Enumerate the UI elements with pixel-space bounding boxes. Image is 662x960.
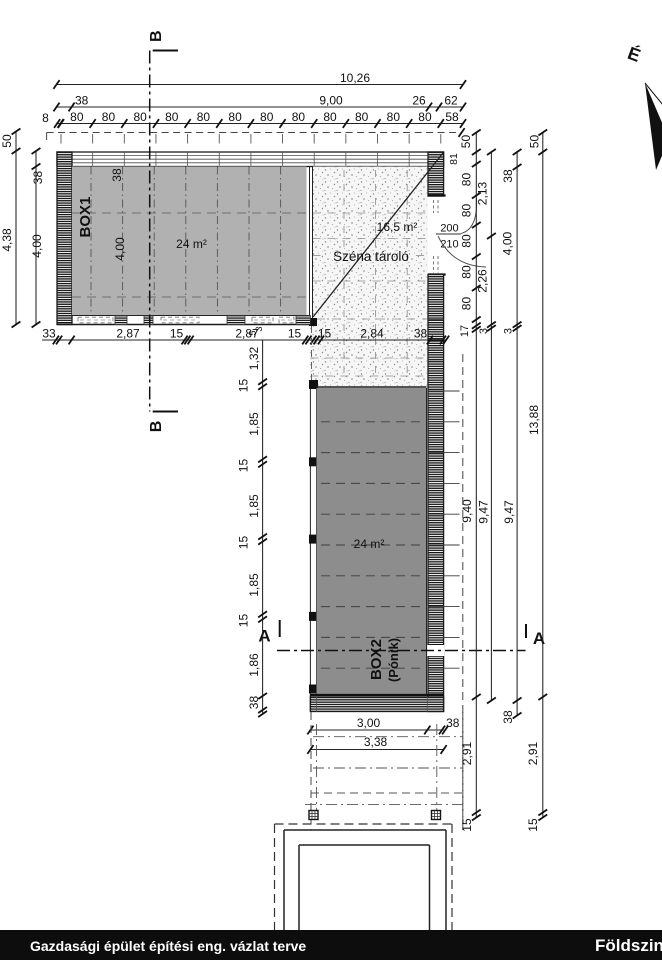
svg-text:80: 80 bbox=[460, 234, 474, 248]
svg-text:80: 80 bbox=[460, 297, 474, 311]
svg-text:2,13: 2,13 bbox=[476, 181, 490, 205]
svg-text:58: 58 bbox=[445, 110, 459, 124]
svg-text:3: 3 bbox=[478, 328, 490, 334]
svg-text:80: 80 bbox=[323, 110, 337, 124]
svg-text:1,85: 1,85 bbox=[247, 412, 261, 436]
svg-text:BOX1: BOX1 bbox=[77, 197, 94, 238]
svg-text:80: 80 bbox=[387, 110, 401, 124]
svg-text:9,00: 9,00 bbox=[319, 94, 343, 108]
svg-text:4,00: 4,00 bbox=[30, 234, 44, 258]
svg-text:80: 80 bbox=[355, 110, 369, 124]
svg-text:13,88: 13,88 bbox=[527, 405, 541, 435]
svg-text:Széna tároló: Széna tároló bbox=[333, 249, 409, 264]
svg-text:38: 38 bbox=[414, 327, 428, 341]
svg-text:80: 80 bbox=[70, 110, 84, 124]
svg-text:26: 26 bbox=[412, 94, 426, 108]
svg-text:33: 33 bbox=[42, 327, 56, 341]
svg-text:8: 8 bbox=[42, 111, 49, 125]
svg-text:3,00: 3,00 bbox=[357, 716, 381, 730]
svg-text:1,85: 1,85 bbox=[247, 573, 261, 597]
svg-text:Gazdasági épület építési eng.: Gazdasági épület építési eng. vázlat ter… bbox=[30, 938, 306, 954]
svg-text:38: 38 bbox=[110, 168, 124, 182]
svg-text:38: 38 bbox=[501, 169, 515, 183]
svg-text:15: 15 bbox=[526, 818, 540, 832]
svg-text:38: 38 bbox=[501, 710, 515, 724]
svg-text:38: 38 bbox=[247, 696, 261, 710]
svg-text:50: 50 bbox=[528, 135, 542, 149]
svg-text:4,00: 4,00 bbox=[501, 231, 515, 255]
svg-text:15: 15 bbox=[237, 614, 251, 628]
svg-text:80: 80 bbox=[460, 173, 474, 187]
svg-text:2,84: 2,84 bbox=[360, 327, 384, 341]
svg-text:3: 3 bbox=[254, 326, 264, 331]
svg-text:1,86: 1,86 bbox=[247, 653, 261, 677]
svg-text:50: 50 bbox=[459, 135, 473, 149]
svg-text:15: 15 bbox=[288, 327, 302, 341]
svg-text:50: 50 bbox=[0, 134, 14, 148]
svg-text:Földszint: Földszint bbox=[595, 936, 662, 955]
svg-text:10,26: 10,26 bbox=[340, 71, 370, 85]
svg-text:1,85: 1,85 bbox=[247, 494, 261, 518]
svg-text:17: 17 bbox=[459, 325, 471, 337]
svg-text:2,87: 2,87 bbox=[116, 327, 140, 341]
svg-text:15: 15 bbox=[237, 459, 251, 473]
svg-text:2,26: 2,26 bbox=[476, 269, 490, 293]
svg-text:B: B bbox=[148, 30, 165, 42]
svg-text:1,32: 1,32 bbox=[247, 346, 261, 370]
svg-text:200: 200 bbox=[440, 223, 458, 235]
svg-text:2,91: 2,91 bbox=[460, 741, 474, 765]
svg-text:15: 15 bbox=[318, 327, 332, 341]
svg-text:62: 62 bbox=[444, 94, 458, 108]
svg-text:9,47: 9,47 bbox=[477, 500, 491, 524]
svg-text:38: 38 bbox=[31, 171, 45, 185]
svg-text:80: 80 bbox=[260, 110, 274, 124]
svg-text:80: 80 bbox=[418, 110, 432, 124]
svg-text:80: 80 bbox=[133, 110, 147, 124]
svg-text:80: 80 bbox=[292, 110, 306, 124]
svg-text:80: 80 bbox=[197, 110, 211, 124]
svg-text:,38: ,38 bbox=[72, 94, 89, 108]
svg-text:24 m²: 24 m² bbox=[354, 537, 385, 551]
svg-text:80: 80 bbox=[102, 110, 116, 124]
svg-text:80: 80 bbox=[165, 110, 179, 124]
svg-text:15: 15 bbox=[237, 536, 251, 550]
svg-text:4,00: 4,00 bbox=[113, 237, 127, 261]
svg-text:B: B bbox=[148, 421, 165, 433]
svg-text:15: 15 bbox=[237, 379, 251, 393]
svg-text:2,91: 2,91 bbox=[526, 741, 540, 765]
svg-text:3: 3 bbox=[503, 328, 515, 334]
svg-text:15: 15 bbox=[460, 818, 474, 832]
svg-text:80: 80 bbox=[460, 265, 474, 279]
svg-text:9,40: 9,40 bbox=[460, 499, 474, 523]
svg-text:BOX2: BOX2 bbox=[368, 639, 385, 680]
svg-text:15: 15 bbox=[170, 327, 184, 341]
svg-text:4,38: 4,38 bbox=[0, 228, 14, 252]
svg-text:80: 80 bbox=[228, 110, 242, 124]
svg-text:80: 80 bbox=[460, 204, 474, 218]
svg-text:16,5 m²: 16,5 m² bbox=[377, 220, 418, 234]
svg-text:24 m²: 24 m² bbox=[176, 237, 207, 251]
svg-text:81: 81 bbox=[448, 153, 460, 165]
svg-text:(Pónik): (Pónik) bbox=[386, 638, 401, 682]
svg-text:A: A bbox=[258, 627, 270, 646]
svg-text:9,47: 9,47 bbox=[502, 500, 516, 524]
svg-text:38: 38 bbox=[446, 716, 460, 730]
